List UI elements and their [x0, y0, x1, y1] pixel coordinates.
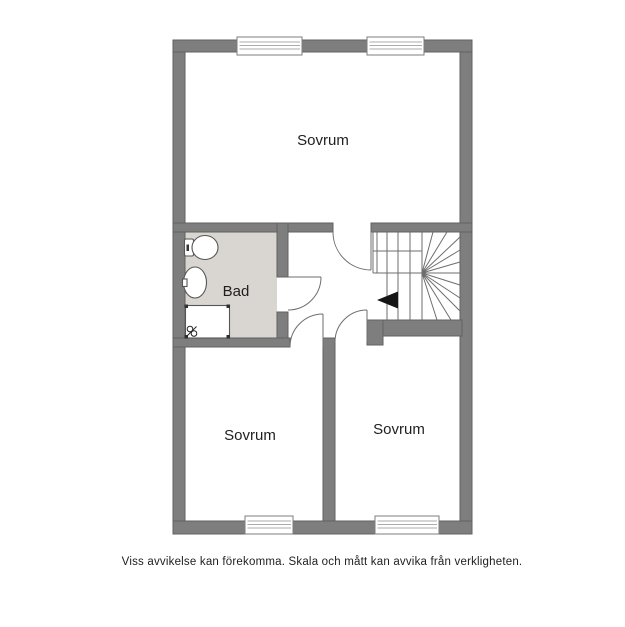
- wall-top: [173, 40, 472, 52]
- door-arc-bedroom-bottom-right: [335, 310, 367, 342]
- shower-drain-icon: [187, 326, 197, 336]
- room-label-bathroom: Bad: [223, 283, 250, 300]
- stair-winders: [422, 232, 460, 320]
- wall-stair-stub: [367, 320, 383, 345]
- shower-icon: [185, 305, 231, 339]
- wall-mid-right: [371, 223, 472, 232]
- floorplan-page: Sovrum Bad Sovrum Sovrum Viss avvikelse …: [0, 0, 625, 627]
- staircase: [373, 232, 460, 320]
- window: [375, 516, 439, 534]
- window: [367, 37, 424, 55]
- door-arc-bedroom-top: [333, 232, 371, 270]
- door-arc-bathroom: [288, 277, 321, 310]
- wall-mid-left: [173, 223, 333, 232]
- door-arc-bedroom-bottom-left: [290, 314, 323, 347]
- window: [245, 516, 293, 534]
- wall-under-stairs: [372, 320, 462, 336]
- window: [237, 37, 302, 55]
- room-label-bedroom-top: Sovrum: [297, 132, 349, 149]
- wall-right: [460, 40, 472, 534]
- room-label-bedroom-bottom-left: Sovrum: [224, 427, 276, 444]
- wall-bedroom-divider: [323, 338, 335, 521]
- wall-bath-right-upper: [277, 223, 288, 277]
- wall-bath-bottom: [173, 338, 290, 347]
- disclaimer-text: Viss avvikelse kan förekomma. Skala och …: [17, 556, 625, 568]
- room-label-bedroom-bottom-right: Sovrum: [373, 421, 425, 438]
- doors: [288, 232, 371, 347]
- toilet-icon: [185, 236, 219, 260]
- floorplan: Sovrum Bad Sovrum Sovrum: [0, 0, 625, 627]
